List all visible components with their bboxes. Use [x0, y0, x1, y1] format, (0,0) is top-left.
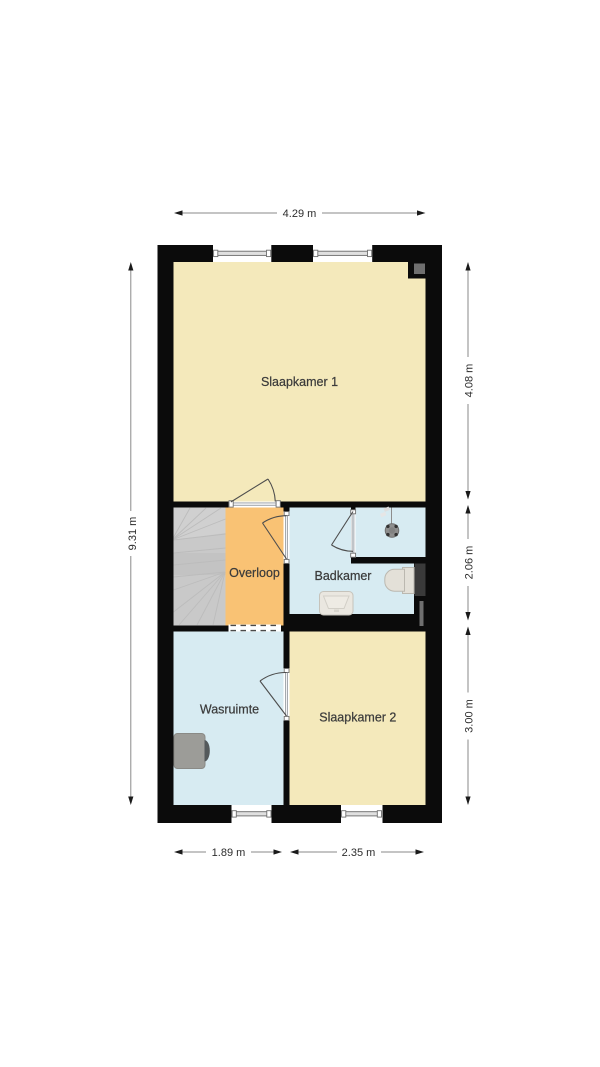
svg-text:4.08 m: 4.08 m	[464, 364, 476, 398]
svg-text:Slaapkamer 2: Slaapkamer 2	[319, 711, 396, 725]
svg-text:Overloop: Overloop	[229, 566, 280, 580]
svg-text:3.00 m: 3.00 m	[464, 699, 476, 733]
svg-text:2.06 m: 2.06 m	[464, 546, 476, 580]
svg-text:2.35 m: 2.35 m	[342, 847, 376, 859]
svg-text:9.31 m: 9.31 m	[127, 517, 139, 551]
svg-text:Slaapkamer 1: Slaapkamer 1	[261, 375, 338, 389]
svg-text:Wasruimte: Wasruimte	[200, 703, 259, 717]
svg-text:Badkamer: Badkamer	[315, 569, 372, 583]
svg-text:4.29 m: 4.29 m	[283, 208, 317, 220]
svg-text:1.89 m: 1.89 m	[212, 847, 246, 859]
